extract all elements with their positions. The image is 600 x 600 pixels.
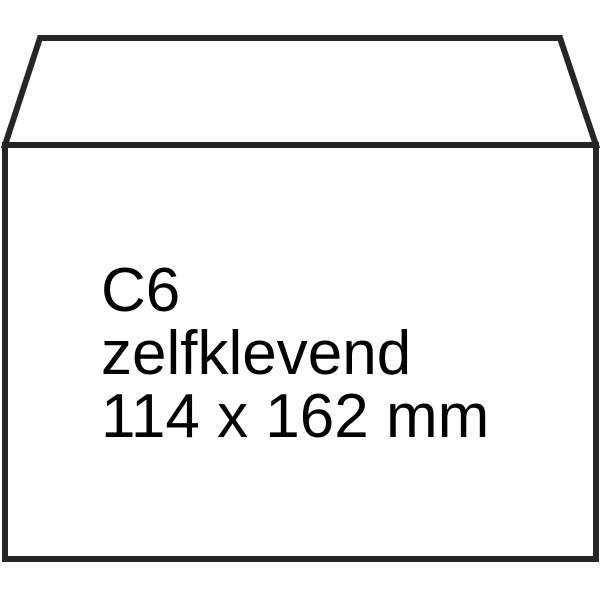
envelope-adhesive-text: zelfklevend (101, 322, 489, 385)
envelope-flap (5, 38, 596, 145)
envelope-label: C6 zelfklevend 114 x 162 mm (101, 259, 489, 448)
product-image-envelope: C6 zelfklevend 114 x 162 mm (0, 0, 600, 600)
envelope-dimensions-text: 114 x 162 mm (101, 385, 489, 448)
envelope-size-text: C6 (101, 259, 489, 322)
